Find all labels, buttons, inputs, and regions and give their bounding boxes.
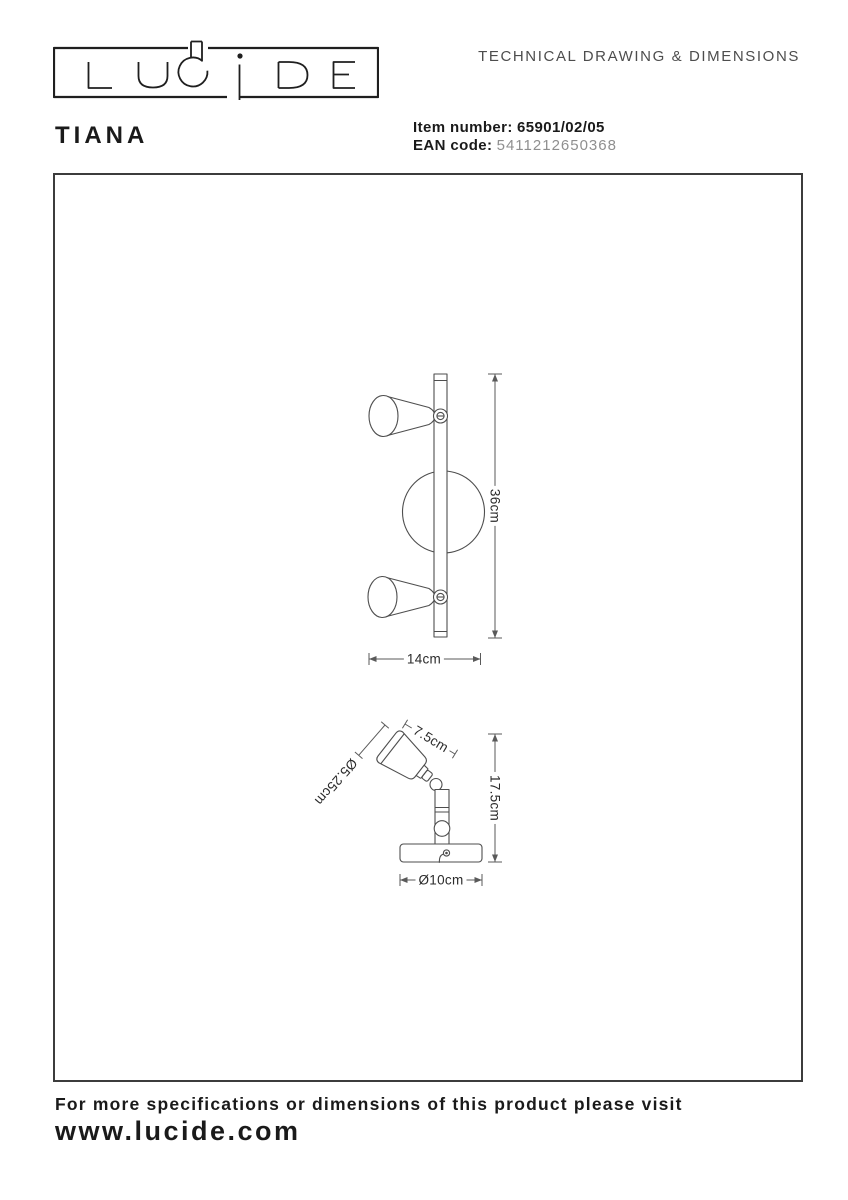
- footer-note: For more specifications or dimensions of…: [55, 1094, 683, 1115]
- ean-label: EAN code:: [413, 137, 492, 154]
- item-number-value: 65901/02/05: [517, 119, 605, 136]
- side-joint-knob: [430, 779, 442, 791]
- dim-label-base-diameter: Ø10cm: [415, 873, 466, 888]
- logo-letter-u: [139, 62, 168, 88]
- dim-label-front-width: 14cm: [404, 652, 444, 667]
- item-number-row: Item number: 65901/02/05: [413, 119, 617, 137]
- logo-box: [54, 48, 378, 97]
- drawing-frame: 36cm 14cm 7.5cm Ø5.25cm 17.5cm Ø10cm: [53, 173, 803, 1082]
- side-base-plate: [400, 844, 482, 862]
- item-number-label: Item number:: [413, 119, 513, 136]
- ean-row: EAN code: 5411212650368: [413, 137, 617, 155]
- logo-letter-i-dot: [237, 53, 242, 58]
- document-title: TECHNICAL DRAWING & DIMENSIONS: [478, 48, 800, 65]
- logo-letter-d: [279, 62, 308, 88]
- product-name: TIANA: [55, 122, 148, 150]
- side-arm-ball: [434, 821, 450, 837]
- ean-value: 5411212650368: [497, 137, 617, 154]
- dim-label-side-height: 17.5cm: [488, 772, 503, 824]
- logo-letter-c: [178, 57, 207, 86]
- head-diameter-dimension: [355, 722, 389, 759]
- front-view: [368, 374, 502, 665]
- technical-drawing: [55, 175, 801, 1080]
- logo-letter-l: [89, 62, 113, 88]
- footer-url: www.lucide.com: [55, 1116, 301, 1147]
- dim-label-front-height: 36cm: [488, 486, 503, 526]
- lucide-logo: [53, 38, 379, 110]
- logo-letter-e: [334, 62, 356, 88]
- item-info-block: Item number: 65901/02/05 EAN code: 54112…: [413, 119, 617, 155]
